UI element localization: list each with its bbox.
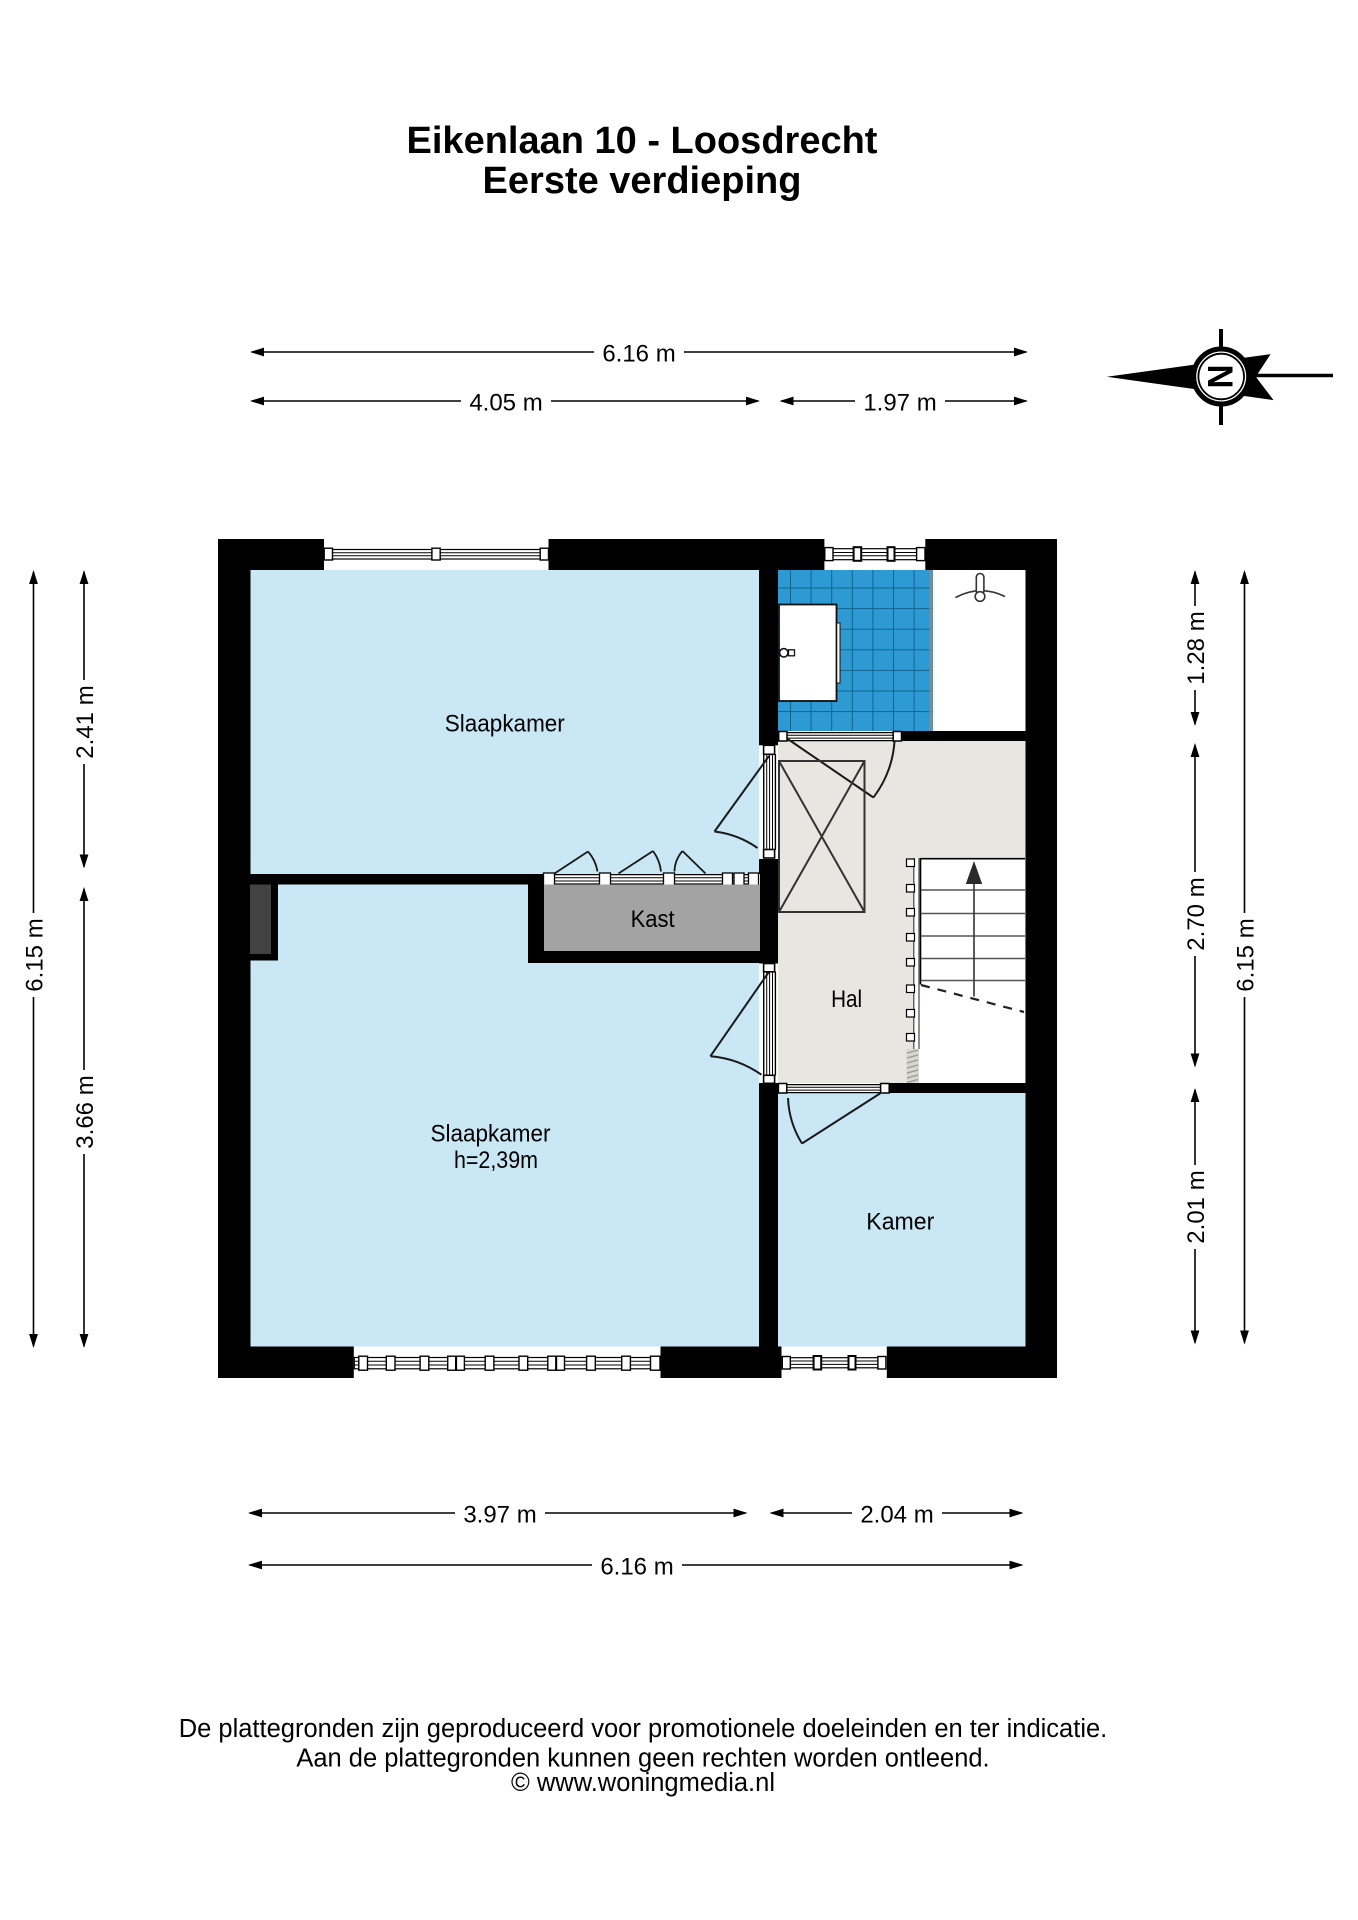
- svg-text:Slaapkamer: Slaapkamer: [445, 711, 565, 738]
- svg-text:6.16 m: 6.16 m: [602, 341, 675, 368]
- svg-text:Kamer: Kamer: [866, 1209, 934, 1236]
- svg-text:2.41 m: 2.41 m: [72, 685, 99, 758]
- svg-text:© www.woningmedia.nl: © www.woningmedia.nl: [511, 1769, 775, 1797]
- svg-text:3.66 m: 3.66 m: [72, 1075, 99, 1148]
- svg-text:Hal: Hal: [831, 986, 862, 1013]
- svg-text:1.97 m: 1.97 m: [863, 390, 936, 417]
- svg-text:2.70 m: 2.70 m: [1183, 877, 1210, 950]
- svg-text:4.05 m: 4.05 m: [469, 390, 542, 417]
- svg-text:6.16 m: 6.16 m: [600, 1554, 673, 1581]
- svg-text:Slaapkamer: Slaapkamer: [431, 1121, 551, 1148]
- svg-text:h=2,39m: h=2,39m: [454, 1147, 538, 1174]
- svg-text:Kast: Kast: [631, 906, 675, 933]
- svg-text:2.04 m: 2.04 m: [860, 1502, 933, 1529]
- svg-text:Eikenlaan 10 - Loosdrecht: Eikenlaan 10 - Loosdrecht: [407, 120, 878, 162]
- svg-text:6.15 m: 6.15 m: [22, 918, 49, 991]
- svg-text:3.97 m: 3.97 m: [463, 1502, 536, 1529]
- svg-text:N: N: [1200, 365, 1240, 389]
- svg-text:De plattegronden zijn geproduc: De plattegronden zijn geproduceerd voor …: [179, 1715, 1108, 1743]
- svg-text:6.15 m: 6.15 m: [1233, 918, 1260, 991]
- svg-text:Eerste verdieping: Eerste verdieping: [483, 160, 802, 202]
- svg-text:2.01 m: 2.01 m: [1183, 1170, 1210, 1243]
- svg-text:1.28 m: 1.28 m: [1183, 611, 1210, 684]
